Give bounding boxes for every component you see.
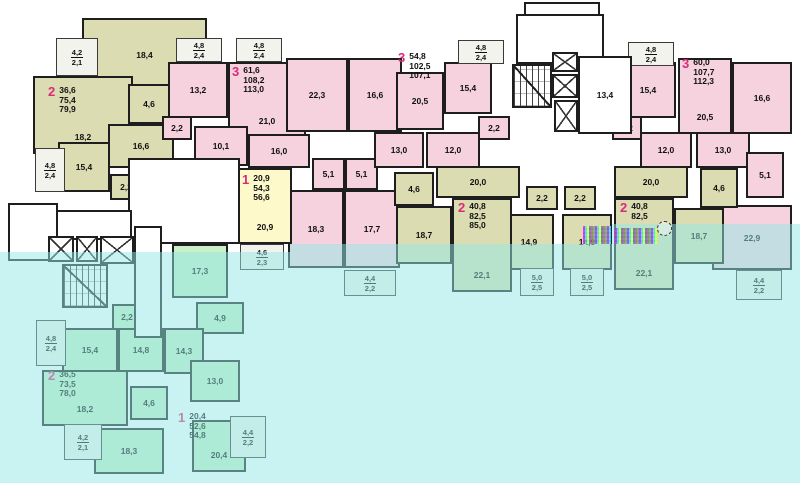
balcony-counted-area: 2,4 [646, 55, 656, 64]
room: 12,0 [640, 132, 692, 168]
render-artifact [583, 226, 611, 244]
apartment-label: 236,675,479,9 [48, 86, 76, 115]
room: 17,7 [344, 190, 400, 268]
room-area-label: 4,6 [408, 184, 420, 194]
apartment-rooms-count: 2 [458, 202, 465, 214]
apartment-areas: 54,8102,5107,1 [409, 52, 430, 81]
apartment-label: 120,954,356,6 [242, 174, 270, 203]
room-area-label: 4,9 [214, 313, 226, 323]
apartment-area-value: 82,5 [631, 212, 648, 222]
balcony: 4,42,2 [736, 270, 782, 300]
room-area-label: 20,9 [257, 222, 274, 232]
room-area-label: 5,1 [323, 169, 335, 179]
balcony-counted-area: 2,2 [754, 286, 764, 295]
room-area-label: 18,7 [691, 231, 708, 241]
render-artifact [615, 228, 657, 244]
room-area-label: 17,7 [364, 224, 381, 234]
apartment-area-value: 78,0 [59, 389, 76, 399]
apartment-areas: 40,882,585,0 [469, 202, 486, 231]
room: 15,4 [58, 142, 110, 192]
balcony: 5,02,5 [570, 268, 604, 296]
balcony-counted-area: 2,5 [532, 283, 542, 292]
balcony-total-area: 4,4 [364, 274, 376, 284]
room-area-label: 20,5 [697, 112, 714, 122]
apartment-areas: 20,452,654,8 [189, 412, 206, 441]
apartment-area-value: 107,1 [409, 71, 430, 81]
balcony-total-area: 4,8 [193, 41, 205, 51]
room-area-label: 16,0 [271, 146, 288, 156]
room: 18,7 [396, 206, 452, 264]
room: 4,6 [700, 168, 738, 208]
apartment-rooms-count: 3 [232, 66, 239, 78]
apartment-areas: 36,573,578,0 [59, 370, 76, 399]
room: 18,3 [94, 428, 164, 474]
room: 5,1 [746, 152, 784, 198]
apartment-area-value: 56,6 [253, 193, 270, 203]
room-area-label: 22,3 [309, 90, 326, 100]
room-area-label: 18,4 [136, 50, 153, 60]
room: 13,0 [374, 132, 424, 168]
apartment-rooms-count: 2 [620, 202, 627, 214]
balcony: 4,82,4 [458, 40, 504, 64]
balcony-total-area: 4,6 [256, 248, 268, 258]
room-area-label: 18,2 [75, 132, 92, 142]
balcony-total-area: 4,8 [475, 43, 487, 53]
room: 2,2 [526, 186, 558, 210]
corridor-left [134, 226, 162, 338]
room-area-label: 18,2 [77, 404, 94, 414]
room-area-label: 20,0 [643, 177, 660, 187]
room-area-label: 18,3 [308, 224, 325, 234]
room-area-label: 22,9 [744, 233, 761, 243]
apartment-label: 120,452,654,8 [178, 412, 206, 441]
apartment-rooms-count: 2 [48, 370, 55, 382]
apartment-label: 240,882,585,0 [458, 202, 486, 231]
balcony: 4,42,2 [344, 270, 396, 296]
balcony-counted-area: 2,3 [257, 258, 267, 267]
apartment-label: 354,8102,5107,1 [398, 52, 431, 81]
room-area-label: 4,6 [713, 183, 725, 193]
room-area-label: 20,5 [412, 96, 429, 106]
room-area-label: 13,2 [190, 85, 207, 95]
room: 20,0 [436, 166, 520, 198]
room-area-label: 16,6 [367, 90, 384, 100]
room-area-label: 15,4 [640, 85, 657, 95]
room-area-label: 14,3 [176, 346, 193, 356]
room-area-label: 15,4 [76, 162, 93, 172]
balcony: 5,02,5 [520, 268, 554, 296]
staircase-left [62, 264, 108, 308]
balcony: 4,82,4 [36, 320, 66, 366]
balcony-counted-area: 2,2 [243, 438, 253, 447]
room-area-label: 12,0 [658, 145, 675, 155]
balcony-total-area: 4,8 [45, 334, 57, 344]
room: 22,9 [712, 205, 792, 270]
apartment-rooms-count: 1 [242, 174, 249, 186]
room-area-label: 2,2 [121, 312, 133, 322]
room: 2,2 [564, 186, 596, 210]
room-area-label: 10,1 [213, 141, 230, 151]
balcony: 4,82,4 [35, 148, 65, 192]
balcony-counted-area: 2,4 [254, 51, 264, 60]
apartment-areas: 61,6108,2113,0 [243, 66, 264, 95]
corridor-area-label: 13,4 [597, 90, 614, 100]
staircase-central [512, 64, 552, 108]
apartment-areas: 40,882,5 [631, 202, 648, 221]
room: 13,0 [696, 132, 750, 168]
apartment-rooms-count: 1 [178, 412, 185, 424]
balcony-total-area: 4,4 [753, 276, 765, 286]
room: 17,3 [172, 244, 228, 298]
room-area-label: 2,2 [574, 193, 586, 203]
apartment-label: 236,573,578,0 [48, 370, 76, 399]
room-area-label: 22,1 [474, 270, 491, 280]
balcony-counted-area: 2,4 [46, 344, 56, 353]
room: 22,3 [286, 58, 348, 132]
elevator-shaft-icon [552, 52, 578, 72]
room-area-label: 5,1 [356, 169, 368, 179]
apartment-area-value: 112,3 [693, 77, 714, 87]
room: 4,6 [394, 172, 434, 206]
room: 2,2 [162, 116, 192, 140]
corridor-central: 13,4 [578, 56, 632, 134]
balcony-total-area: 4,8 [44, 161, 56, 171]
room-area-label: 18,3 [121, 446, 138, 456]
apartment-areas: 36,675,479,9 [59, 86, 76, 115]
apartment-rooms-count: 3 [682, 58, 689, 70]
room-area-label: 13,0 [207, 376, 224, 386]
balcony: 4,42,2 [230, 416, 266, 458]
apartment-label: 240,882,5 [620, 202, 648, 221]
balcony-counted-area: 2,1 [72, 58, 82, 67]
apartment-area-value: 113,0 [243, 85, 264, 95]
apartment-areas: 20,954,356,6 [253, 174, 270, 203]
room-area-label: 13,0 [715, 145, 732, 155]
elevator-shaft-icon [48, 236, 74, 262]
room-area-label: 20,0 [470, 177, 487, 187]
balcony: 4,82,4 [236, 38, 282, 62]
room-area-label: 4,6 [143, 99, 155, 109]
elevator-shaft-icon [552, 74, 578, 98]
room: 18,3 [288, 190, 344, 268]
room-area-label: 2,2 [171, 123, 183, 133]
elevator-shaft-icon [76, 236, 98, 262]
elevator-shaft-icon [554, 100, 578, 132]
room-area-label: 4,6 [143, 398, 155, 408]
balcony-total-area: 4,4 [242, 428, 254, 438]
room: 16,0 [248, 134, 310, 168]
room: 16,6 [348, 58, 402, 132]
room: 12,0 [426, 132, 480, 168]
balcony-counted-area: 2,2 [365, 284, 375, 293]
room-area-label: 15,4 [460, 83, 477, 93]
balcony: 4,62,3 [240, 244, 284, 270]
room-area-label: 2,2 [488, 123, 500, 133]
balcony: 4,22,1 [64, 424, 102, 460]
balcony-counted-area: 2,1 [78, 443, 88, 452]
balcony-total-area: 4,8 [645, 45, 657, 55]
room-area-label: 17,3 [192, 266, 209, 276]
apartment-area-value: 79,9 [59, 105, 76, 115]
room: 2,2 [478, 116, 510, 140]
room: 4,6 [130, 386, 168, 420]
room: 5,1 [312, 158, 345, 190]
room-area-label: 18,7 [416, 230, 433, 240]
room-area-label: 13,0 [391, 145, 408, 155]
apartment-area-value: 85,0 [469, 221, 486, 231]
balcony-counted-area: 2,5 [582, 283, 592, 292]
room: 13,2 [168, 62, 228, 118]
room-area-label: 12,0 [445, 145, 462, 155]
room-area-label: 14,9 [521, 237, 538, 247]
room: 18,7 [674, 208, 724, 264]
apartment-label: 360,0107,7112,3 [682, 58, 715, 87]
balcony-counted-area: 2,4 [45, 171, 55, 180]
balcony-total-area: 5,0 [581, 273, 593, 283]
room: 20,0 [614, 166, 688, 198]
apartment-rooms-count: 3 [398, 52, 405, 64]
room: 13,0 [190, 360, 240, 402]
apartment-area-value: 54,8 [189, 431, 206, 441]
room: 15,4 [444, 62, 492, 114]
balcony: 4,82,4 [628, 42, 674, 66]
room: 20,5 [396, 72, 444, 130]
floor-plan-canvas: 13,418,418,24,616,615,42,213,221,022,316… [0, 0, 800, 483]
water-tint-overlay [290, 244, 612, 483]
room-area-label: 21,0 [259, 116, 276, 126]
apartment-label: 361,6108,2113,0 [232, 66, 265, 95]
elevator-shaft-icon [100, 236, 134, 264]
room-area-label: 14,8 [133, 345, 150, 355]
room-area-label: 15,4 [82, 345, 99, 355]
apartment-rooms-count: 2 [48, 86, 55, 98]
balcony-counted-area: 2,4 [194, 51, 204, 60]
balcony: 4,22,1 [56, 38, 98, 76]
balcony-total-area: 5,0 [531, 273, 543, 283]
room-area-label: 2,2 [536, 193, 548, 203]
room: 16,6 [732, 62, 792, 134]
balcony: 4,82,4 [176, 38, 222, 62]
room-area-label: 20,4 [211, 450, 228, 460]
room-area-label: 22,1 [636, 268, 653, 278]
room-area-label: 16,6 [754, 93, 771, 103]
room-area-label: 16,6 [133, 141, 150, 151]
balcony-total-area: 4,2 [77, 433, 89, 443]
balcony-total-area: 4,8 [253, 41, 265, 51]
balcony-counted-area: 2,4 [476, 53, 486, 62]
balcony-total-area: 4,2 [71, 48, 83, 58]
room: 15,4 [62, 328, 118, 372]
cursor-marker [657, 221, 672, 236]
room-area-label: 5,1 [759, 170, 771, 180]
apartment-areas: 60,0107,7112,3 [693, 58, 714, 87]
